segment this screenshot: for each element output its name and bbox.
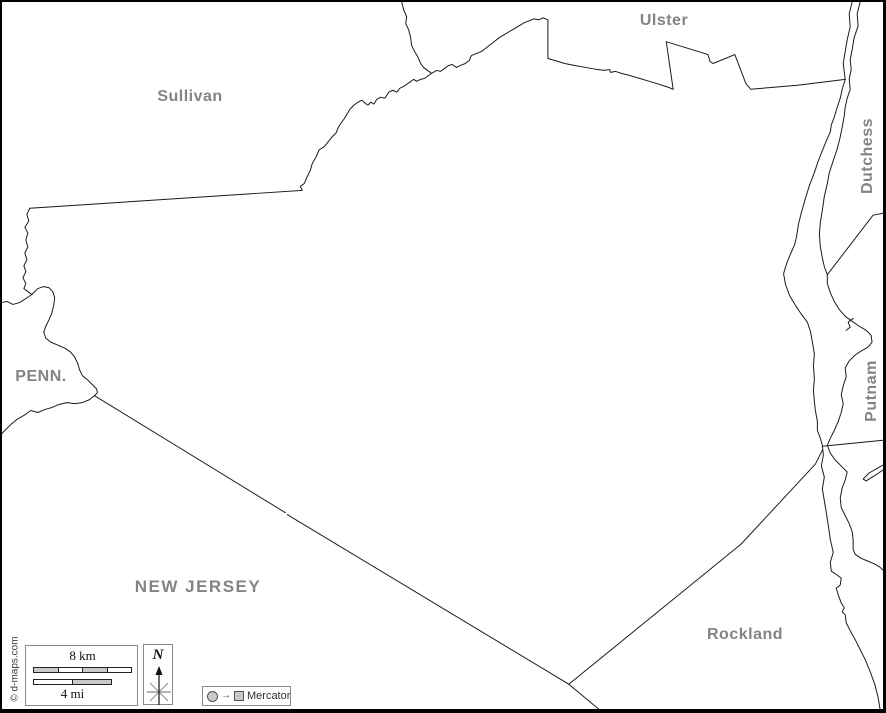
km-scale-bar: [33, 667, 132, 673]
scale-km-label: 8 km: [33, 648, 132, 664]
mi-bar-segment: [34, 680, 72, 684]
north-arrow-box: N: [143, 644, 173, 705]
penn-border-west-path: [2, 295, 32, 305]
hudson-west-bank-path: [784, 2, 880, 709]
dutchess-boundary-path: [827, 213, 883, 274]
copyright-credit: © d-maps.com: [10, 636, 21, 701]
km-bar-segment: [34, 668, 58, 672]
globe-circle-icon: [207, 691, 218, 702]
mi-scale-bar: [33, 679, 112, 685]
label-rockland: Rockland: [707, 626, 783, 644]
orange-north-boundary-path: [30, 18, 845, 208]
county-outline-map: [2, 2, 883, 709]
label-penn: PENN.: [15, 368, 66, 386]
label-dutchess: Dutchess: [859, 118, 877, 194]
north-label: N: [144, 647, 172, 664]
mi-bar-segment: [72, 680, 111, 684]
delaware-river-north-path: [23, 208, 32, 294]
projection-legend-box: → Mercator: [202, 686, 291, 706]
projection-name: Mercator: [247, 690, 290, 702]
label-putnam: Putnam: [863, 360, 881, 422]
compass-rose-icon: [145, 666, 173, 706]
label-ulster: Ulster: [640, 12, 688, 30]
km-bar-segment: [82, 668, 107, 672]
river-spit-path: [863, 465, 883, 481]
putnam-boundary-path: [822, 440, 883, 446]
hudson-east-bank-path: [819, 2, 883, 570]
label-sullivan: Sullivan: [157, 88, 222, 106]
rockland-boundary-path: [569, 450, 823, 684]
map-square-icon: [234, 691, 244, 701]
map-canvas: Sullivan Ulster Dutchess Putnam PENN. NE…: [0, 0, 886, 713]
scale-bar-box: 8 km 4 mi: [25, 645, 138, 706]
sullivan-ulster-boundary-path: [402, 2, 432, 73]
label-new-jersey: NEW JERSEY: [135, 577, 261, 597]
scale-mi-label: 4 mi: [33, 686, 112, 702]
projection-arrow-icon: →: [221, 691, 231, 701]
km-bar-segment: [58, 668, 83, 672]
delaware-river-south-path: [2, 396, 94, 434]
km-bar-segment: [107, 668, 132, 672]
